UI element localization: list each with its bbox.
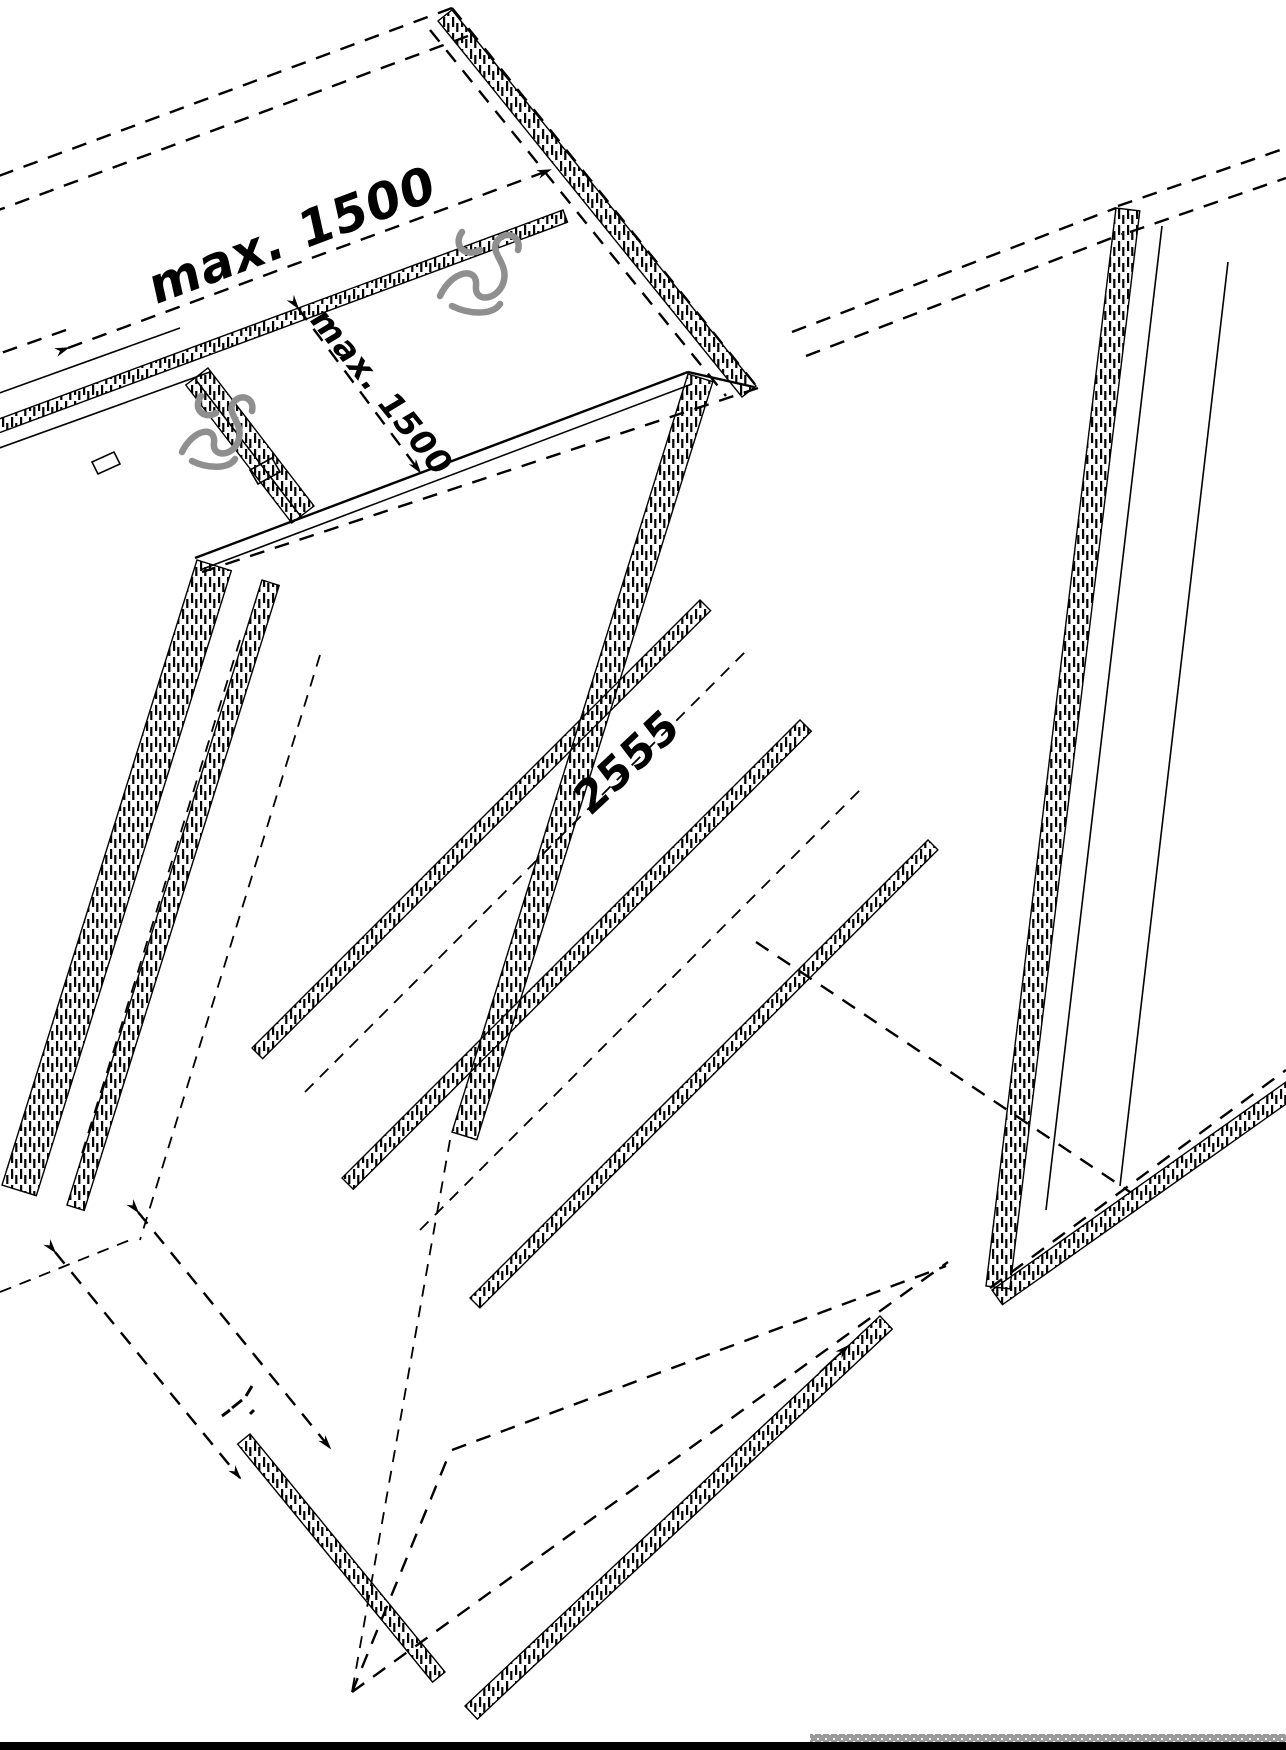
- front-panel-edge: [352, 1262, 948, 1692]
- right-panel-edge: [1118, 148, 1286, 206]
- dimension-line: [55, 1252, 240, 1478]
- right-panel-edge-band: [986, 208, 1140, 1289]
- right-panel-edge: [990, 1070, 1286, 1288]
- footer-gray-strip: [810, 1734, 1286, 1742]
- dimension-side: max. 1500: [298, 303, 463, 481]
- bottom-left-shelf: [0, 1212, 445, 1682]
- footer-edge: [0, 1734, 1286, 1750]
- front-panel-edge: [452, 1266, 946, 1450]
- top-panel-edge: [0, 330, 66, 374]
- shelf-edge: [0, 1240, 130, 1292]
- bottom-front-panel: [352, 1262, 948, 1719]
- bracket-clip: [92, 452, 120, 474]
- top-panel-edge: [430, 30, 726, 396]
- shelf-edge-band: [238, 1434, 445, 1682]
- right-panel: [756, 148, 1286, 1305]
- assembly-drawing-canvas: max. 1500 max. 1500 2555: [0, 0, 1286, 1750]
- top-panel-hatched-edge: [438, 10, 756, 397]
- center-door-panel: [252, 600, 938, 1308]
- right-panel-edge: [806, 234, 1122, 356]
- right-panel-edge: [792, 208, 1116, 332]
- small-tick-marks: [222, 1386, 254, 1416]
- dimension-label: max. 1500: [301, 303, 462, 481]
- door-face-line: [305, 649, 748, 1092]
- door-edge-band: [252, 600, 711, 1059]
- assembly-drawing-page: max. 1500 max. 1500 2555: [0, 0, 1286, 1750]
- panel-face-line: [1120, 262, 1228, 1186]
- left-panel-edge-band: [452, 374, 713, 1140]
- panel-face-line: [352, 1140, 450, 1692]
- door-face-line: [420, 790, 860, 1230]
- dimension-label: max. 1500: [144, 153, 440, 317]
- right-panel-bottom-band: [992, 1082, 1286, 1305]
- page-edge-bar: [0, 1742, 1286, 1750]
- dimension-line: [138, 1212, 330, 1448]
- front-panel-edge-band: [465, 1316, 892, 1719]
- left-panel: [2, 372, 754, 1692]
- mounting-rail-bracket: [92, 368, 314, 523]
- right-panel-edge: [1130, 178, 1286, 232]
